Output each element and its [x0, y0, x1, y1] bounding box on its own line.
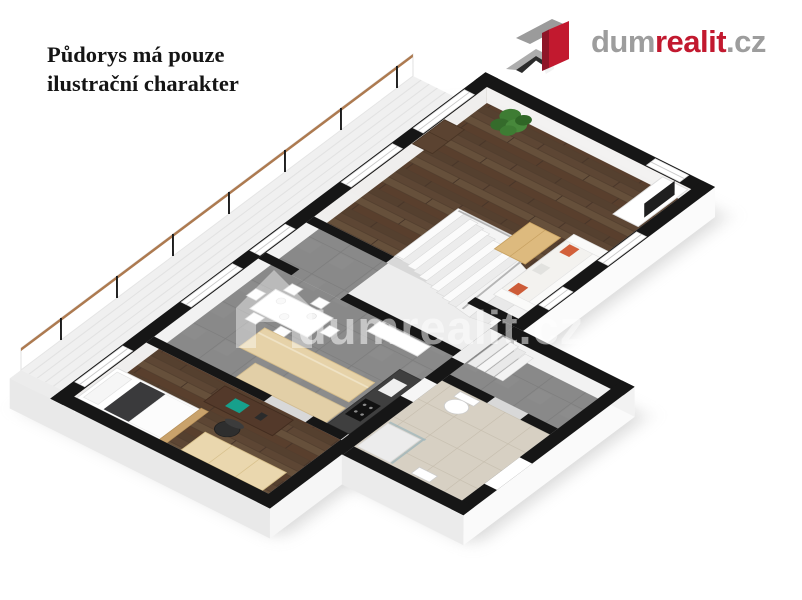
logo-word-dum: dum: [591, 24, 655, 59]
logo-word-tld: .cz: [726, 24, 766, 59]
dumrealit-logo-icon: [506, 6, 584, 78]
dumrealit-logo: dumrealit.cz: [506, 6, 766, 78]
logo-word-realit: realit: [655, 24, 726, 59]
disclaimer-line-1: Půdorys má pouze: [47, 40, 239, 69]
disclaimer-note: Půdorys má pouze ilustrační charakter: [47, 40, 239, 98]
watermark-text: dumrealit.cz: [298, 301, 584, 354]
dumrealit-logo-text: dumrealit.cz: [591, 24, 766, 60]
disclaimer-line-2: ilustrační charakter: [47, 69, 239, 98]
